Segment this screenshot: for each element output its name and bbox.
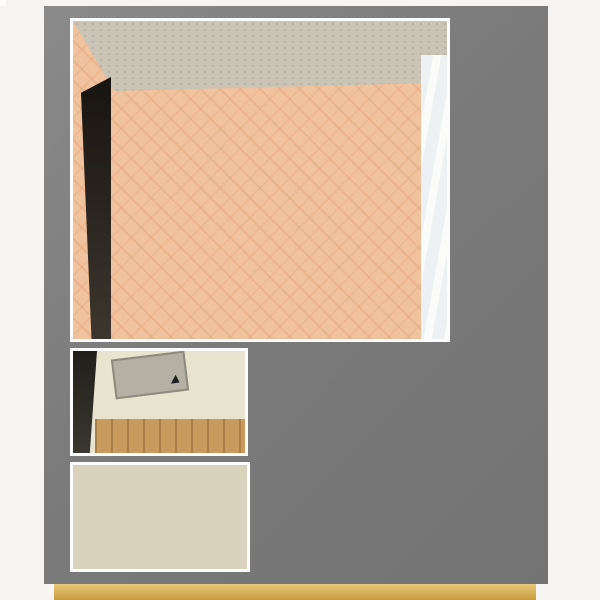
- corridor-door: [111, 351, 189, 400]
- hall-far-wall: [73, 21, 447, 91]
- room-hall: [70, 18, 450, 342]
- room-bath: [70, 462, 250, 572]
- room-corridor: [70, 348, 248, 456]
- bath-left-wall-shadow: [73, 465, 107, 569]
- corridor-wood-floor: [95, 419, 245, 453]
- door-handle-mark: [171, 375, 182, 387]
- corridor-left-wall-shadow: [73, 351, 97, 453]
- hall-window-wall: [421, 55, 447, 339]
- building-bottom-edge: [54, 584, 536, 600]
- room-balcony: [0, 0, 6, 6]
- floor-plan-image: REAL ESTATE AGENCY OOO «Vash Zolotoy Klu…: [0, 0, 600, 600]
